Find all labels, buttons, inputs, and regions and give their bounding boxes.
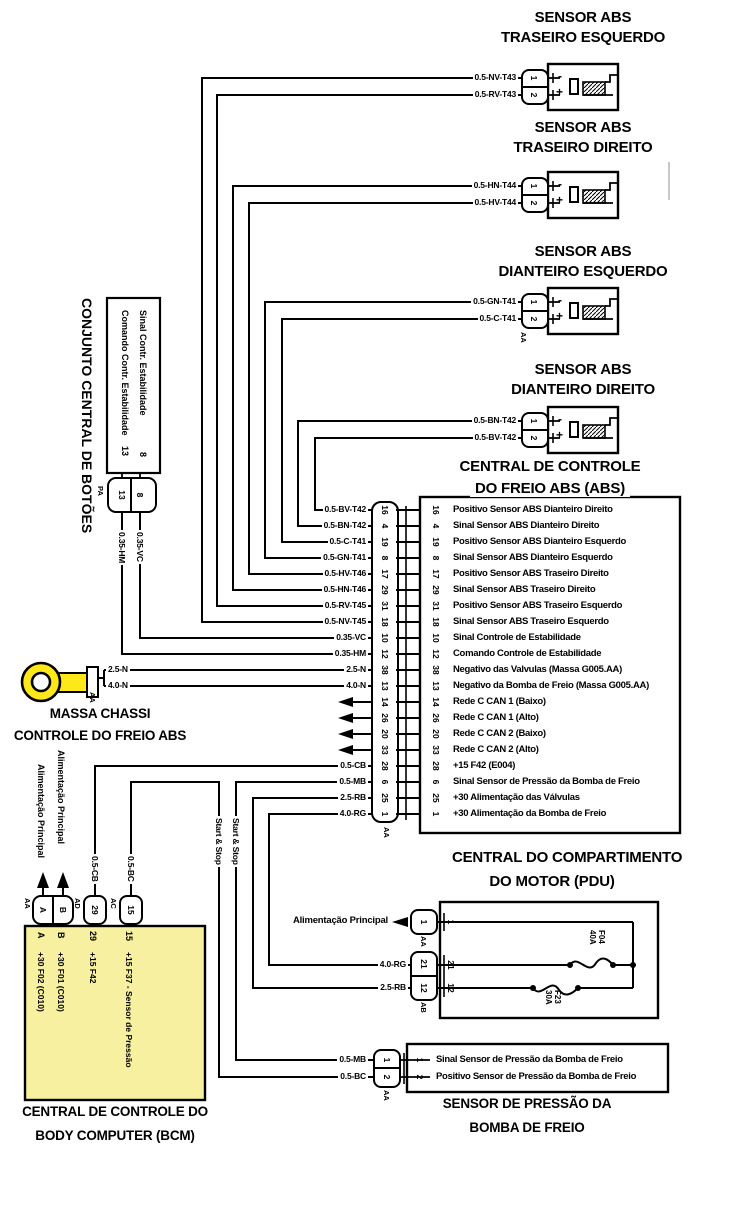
pin-description: Positivo Sensor ABS Traseiro Esquerdo [453,600,622,612]
wire-label: 2.5-N [106,664,130,675]
wire-label: 2.5-RB [378,982,408,993]
startstop-label: Start & Stop [230,816,241,867]
connector-pin-number: 2 [527,312,541,326]
connector-code: AA [23,898,31,909]
pin-description: Rede C CAN 2 (Alto) [453,744,539,756]
connector-code: AD [73,898,81,909]
botoes-module-shape [107,298,160,512]
pressure-sensor-shape [374,1044,668,1092]
connector-code: AA [88,692,96,703]
bcm-pin-id: 15 [123,931,135,941]
feed-label: Alimentação Principal [55,750,67,844]
connector-pin-number: 1 [527,179,541,193]
wire-label: 0.5-NV-T45 [323,616,368,627]
bcm-pin-id: 29 [87,931,99,941]
wire-label: 0.5-BN-T42 [322,520,368,531]
connector-pin-number: 2 [527,88,541,102]
connector-pin-number: 1 [417,915,431,929]
ground-terminal-shape [22,663,98,701]
pin-description: +30 Alimentação da Bomba de Freio [453,808,606,820]
connector-code: AC [109,898,117,909]
wire-label: 0.5-MB [337,1054,368,1065]
connector-code: AA [382,1090,390,1101]
wire-label: 0.5-HV-T46 [323,568,368,579]
wire-label: 0.35-HM [333,648,368,659]
pin-description: Sinal Controle de Estabilidade [453,632,581,644]
connector-code: AB [419,1002,427,1013]
ground-caption-line2: CONTROLE DO FREIO ABS [0,730,200,742]
pin-description: Negativo das Valvulas (Massa G005.AA) [453,664,622,676]
wire-label: 0.5-C-T41 [328,536,368,547]
ground-caption-line1: MASSA CHASSI [0,708,200,720]
pin-stub [396,733,420,735]
bcm-pin-desc: +15 F37 - Sensor de Pressão [123,952,135,1068]
fuse-label: F0440A [588,930,606,945]
connector-pin-number: 15 [124,903,138,917]
pin-description: Rede C CAN 1 (Alto) [453,712,539,724]
pin-description: Rede C CAN 2 (Baixo) [453,728,546,740]
connector-pin-number: 21 [417,957,431,971]
connector-pin-number: 2 [380,1070,394,1084]
arrow-line [352,717,372,719]
connector-code: AA [382,827,390,838]
pin-description: +30 Alimentação das Válvulas [453,792,580,804]
wire-label: 0.5-C-T41 [478,313,518,324]
bcm-pin-id: A [35,932,47,939]
pin-number: 12 [444,981,458,995]
pin-stub [396,749,420,751]
connector-code: AA [419,936,427,947]
pin-description: Negativo da Bomba de Freio (Massa G005.A… [453,680,649,692]
minus-sign: - [558,178,562,190]
arrow-up-icon [57,872,69,888]
pin-stub [396,525,420,527]
wire-label: 2.5-RB [338,792,368,803]
wire-label: 0.5-CB [338,760,368,771]
pin-description: Positivo Sensor ABS Dianteiro Direito [453,504,613,516]
botoes-signal-pin: 13 [119,446,131,456]
bcm-pin-id: B [55,932,67,939]
minus-sign: - [558,70,562,82]
pin-description: Positivo Sensor de Pressão da Bomba de F… [436,1071,636,1083]
wire-label: 0.5-HV-T44 [473,197,518,208]
startstop-label: Start & Stop [213,816,224,867]
wire-label: 0.5-HN-T46 [322,584,368,595]
pin-description: Sinal Sensor de Pressão da Bomba de Frei… [453,776,640,788]
wire-label: 0.5-GN-T41 [321,552,368,563]
connector-code: PA [96,486,104,496]
pin-description: Rede C CAN 1 (Baixo) [453,696,546,708]
feed-label: Alimentação Principal [291,915,390,926]
sensor2-title-line2: TRASEIRO DIREITO [458,142,708,154]
wire-label: 0.5-BV-T42 [323,504,368,515]
bcm-caption-line2: BODY COMPUTER (BCM) [15,1130,215,1142]
bcm-pin-desc: +30 F01 (C010) [55,952,67,1012]
connector-pin-number: 1 [380,1053,394,1067]
pin-stub [396,509,420,511]
pin-stub [396,541,420,543]
wire-label: 0.5-CB [89,854,100,884]
pin-stub [396,781,420,783]
wire-label: 4.0-N [344,680,368,691]
pin-description: Positivo Sensor ABS Traseiro Direito [453,568,609,580]
pin-stub [396,765,420,767]
pin-description: Comando Controle de Estabilidade [453,648,601,660]
connector-pin-number: 1 [527,414,541,428]
arrow-line [352,733,372,735]
pin-stub [396,797,420,799]
minus-sign: - [558,294,562,306]
connector-pin-number: 29 [88,903,102,917]
sensor4-title-line1: SENSOR ABS [458,364,708,376]
plus-sign: + [556,310,563,322]
wire-label: 4.0-N [106,680,130,691]
pin-stub [396,573,420,575]
pressure-caption-line2: BOMBA DE FREIO [422,1122,632,1134]
plus-sign: + [556,86,563,98]
minus-sign: - [558,413,562,425]
pin-stub [396,589,420,591]
pin-stub [396,653,420,655]
connector-pin-number: A [36,903,50,917]
wire-label: 0.5-BC [338,1071,368,1082]
plus-sign: + [556,429,563,441]
botoes-title: CONJUNTO CENTRAL DE BOTÕES [81,298,93,533]
connector-pin-number: 1 [378,803,392,825]
botoes-signal-label: Sinal Contr. Estabilidade [137,310,149,416]
connector-pin-number: 12 [417,981,431,995]
connector-pin-number: 1 [527,71,541,85]
arrow-line [352,701,372,703]
sensor1-title-line1: SENSOR ABS [458,12,708,24]
bcm-module-shape [25,888,205,1100]
pin-stub [396,701,420,703]
pressure-caption-line1: SENSOR DE PRESSÃO DA [422,1098,632,1110]
wire-label: 0.5-RV-T45 [323,600,368,611]
wire-label: 0.5-BN-T42 [472,415,518,426]
arrow-left-icon [338,697,353,707]
botoes-signal-label: Comando Contr. Estabilidade [119,310,131,436]
pin-description: Sinal Sensor ABS Dianteiro Direito [453,520,599,532]
fuse-label: F2330A [544,990,562,1005]
wire-label: 0.35-VC [134,530,145,564]
wire-label: 0.5-HN-T44 [472,180,518,191]
sensor4-title-line2: DIANTEIRO DIREITO [458,384,708,396]
botoes-signal-pin: 8 [137,452,149,457]
pin-stub [396,685,420,687]
wiring-diagram-canvas: SENSOR ABS TRASEIRO ESQUERDO 0.5-NV-T43 … [0,0,733,1207]
connector-pin-number: B [56,903,70,917]
connector-pin-number: 1 [527,295,541,309]
pin-description: +15 F42 (E004) [453,760,515,772]
arrow-line [352,749,372,751]
pin-number: 1 [429,804,443,824]
wire-label: 0.5-MB [337,776,368,787]
pin-stub [396,669,420,671]
pdu-title-line2: DO MOTOR (PDU) [452,876,652,888]
arrow-left-icon [392,917,408,927]
arrow-left-icon [338,713,353,723]
pin-stub [396,637,420,639]
wire-label: 0.35-VC [334,632,368,643]
pin-stub [396,813,420,815]
ground-wires [98,670,372,686]
pdu-title-line1: CENTRAL DO COMPARTIMENTO [452,852,652,864]
wire-label: 0.5-BC [125,854,136,884]
bcm-pin-desc: +15 F42 [87,952,99,983]
pin-number: 21 [444,958,458,972]
wire-label: 2.5-N [344,664,368,675]
wire-label: 0.35-HM [116,530,127,565]
feed-label: Alimentação Principal [35,764,47,858]
pin-description: Sinal Sensor ABS Dianteiro Esquerdo [453,552,613,564]
connector-pin-number: 13 [115,488,129,502]
pin-number: 1 [444,915,458,929]
pin-stub [396,557,420,559]
wire-label: 0.5-NV-T43 [473,72,518,83]
sensor3-title-line1: SENSOR ABS [458,246,708,258]
arrow-left-icon [338,745,353,755]
connector-pin-number: 2 [527,431,541,445]
pin-stub [396,605,420,607]
pin-stub [396,717,420,719]
abs-title-line1: CENTRAL DE CONTROLE [430,461,670,473]
bcm-caption-line1: CENTRAL DE CONTROLE DO [15,1106,215,1118]
pin-description: Positivo Sensor ABS Dianteiro Esquerdo [453,536,626,548]
sensor2-title-line1: SENSOR ABS [458,122,708,134]
wire-label: 0.5-GN-T41 [471,296,518,307]
pin-stub [396,621,420,623]
wire-label: 0.5-RV-T43 [473,89,518,100]
connector-pin-number: 2 [527,196,541,210]
pin-number: 2 [413,1071,427,1083]
sensor1-title-line2: TRASEIRO ESQUERDO [458,32,708,44]
sensor3-title-line2: DIANTEIRO ESQUERDO [458,266,708,278]
connector-code: AA [519,332,527,343]
bcm-pin-desc: +30 F02 (C010) [35,952,47,1012]
pin-description: Sinal Sensor de Pressão da Bomba de Frei… [436,1054,623,1066]
plus-sign: + [556,194,563,206]
connector-pin-number: 8 [133,488,147,502]
abs-title-line2: DO FREIO ABS (ABS) [430,483,670,495]
wire-label: 4.0-RG [338,808,368,819]
wire-label: 0.5-BV-T42 [473,432,518,443]
pin-number: 1 [413,1054,427,1066]
arrow-up-icon [37,872,49,888]
pin-description: Sinal Sensor ABS Traseiro Esquerdo [453,616,609,628]
pin-description: Sinal Sensor ABS Traseiro Direito [453,584,595,596]
arrow-left-icon [338,729,353,739]
wire-label: 4.0-RG [378,959,408,970]
